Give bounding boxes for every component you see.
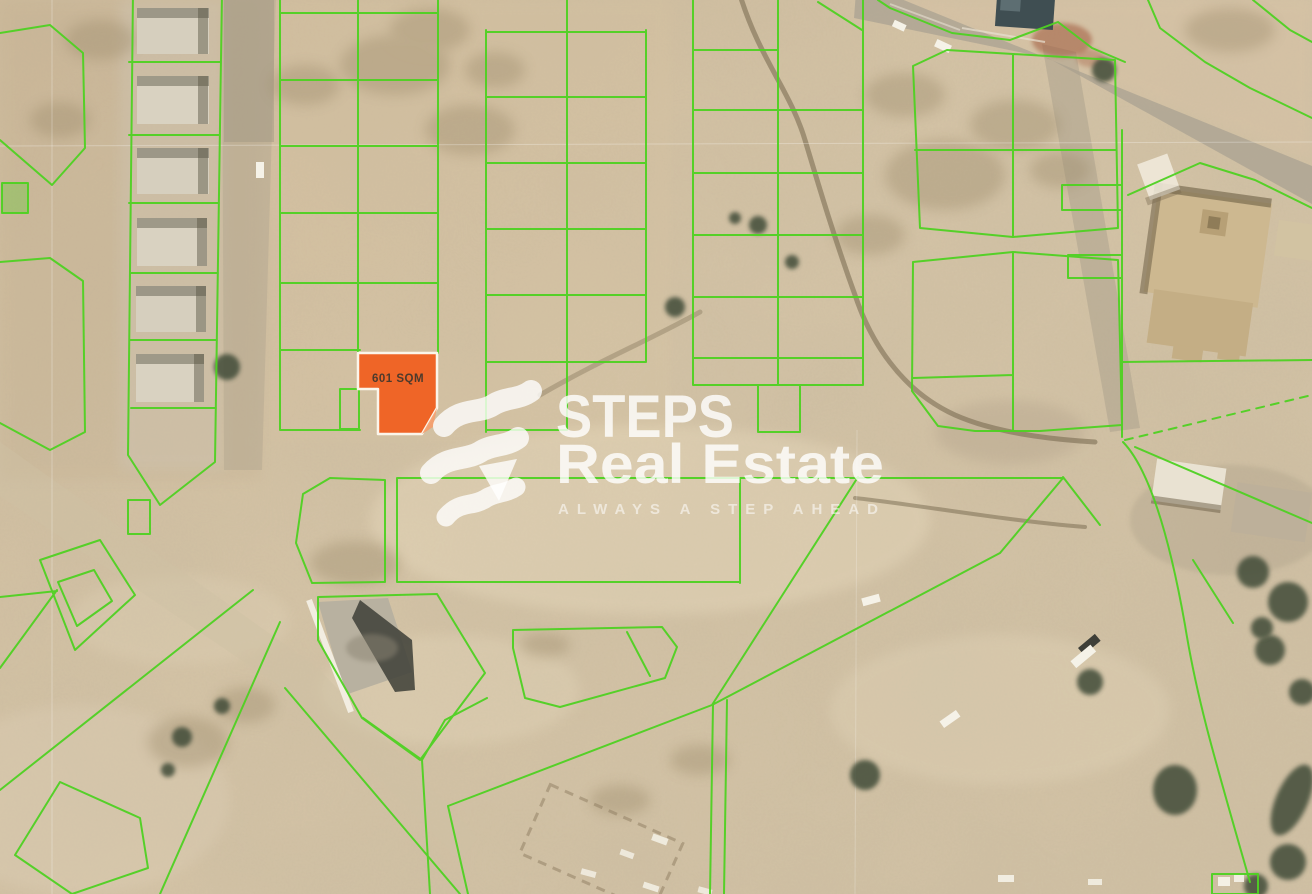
satellite-map-image: 601 SQM STEPS Real Estate ALWAYS A STEP … [0,0,1312,894]
brand-name-real-estate: Real Estate [556,432,884,495]
brand-tagline: ALWAYS A STEP AHEAD [558,501,886,518]
small-green-plot [2,183,28,213]
construction-compound [1130,459,1312,575]
plot-area-label: 601 SQM [372,373,424,385]
annex-building [1274,220,1312,261]
